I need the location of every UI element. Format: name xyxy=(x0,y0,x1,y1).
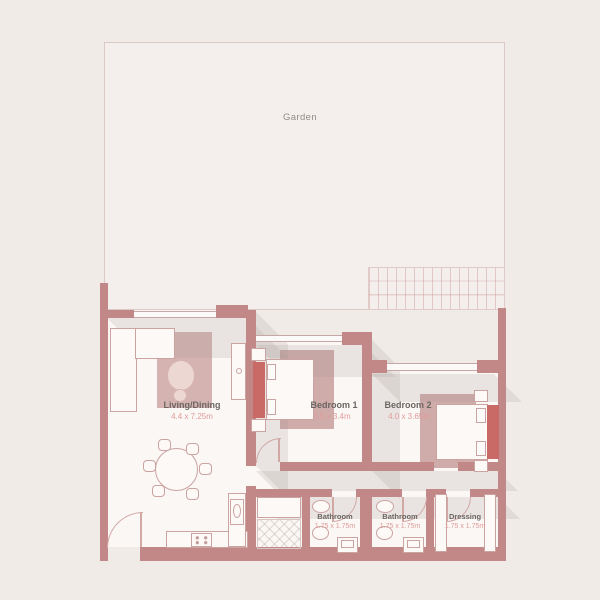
armchair xyxy=(167,360,195,391)
wall-right xyxy=(498,308,506,561)
dining-chair xyxy=(186,443,199,455)
wall-bedroom2-pillar-left xyxy=(371,360,387,373)
stove xyxy=(191,533,212,547)
wall-bathroom1-bathroom2 xyxy=(360,489,372,547)
bedroom2-window xyxy=(386,363,478,371)
dressing-closet-right xyxy=(484,494,496,552)
bedroom1-nightstand xyxy=(251,419,266,432)
bedroom2-pillow xyxy=(476,408,486,423)
wall-bedroom2-bottom-a xyxy=(372,462,434,471)
utility-hatched-area xyxy=(257,519,301,549)
bedroom1-door-leaf xyxy=(278,438,280,462)
dining-chair xyxy=(186,488,199,500)
kitchen-sink-basin xyxy=(233,504,241,518)
wall-bathroom1-left xyxy=(302,489,310,547)
wall-bedroom1-bedroom2 xyxy=(362,339,372,471)
dining-chair xyxy=(143,460,156,472)
bedroom2-headboard xyxy=(487,405,499,459)
dining-chair xyxy=(158,439,171,451)
pergola-trellis xyxy=(368,267,505,310)
bedroom1-window xyxy=(254,335,343,342)
tv-unit-decor xyxy=(236,368,242,374)
bathroom2-dims: 1.75 x 1.75m xyxy=(380,522,420,531)
bedroom1-headboard xyxy=(253,362,265,418)
wall-living-top xyxy=(216,305,248,318)
garden-label: Garden xyxy=(283,112,317,123)
bathroom2-label: Bathroom xyxy=(382,512,417,522)
dressing-dims: 1.75 x 1.75m xyxy=(445,522,485,531)
living-label: Living/Dining xyxy=(164,400,221,410)
bathroom1-dims: 1.75 x 1.75m xyxy=(315,522,355,531)
wall-bottom xyxy=(140,547,506,561)
bedroom2-label: Bedroom 2 xyxy=(384,400,431,410)
wall-bedroom1-bottom xyxy=(280,462,372,471)
sofa-vertical xyxy=(110,328,137,412)
living-dims: 4.4 x 7.25m xyxy=(171,412,213,421)
entrance-door-leaf xyxy=(140,512,142,547)
dressing-label: Dressing xyxy=(449,512,481,522)
sofa-horizontal xyxy=(135,328,175,359)
dining-chair xyxy=(199,463,212,475)
bedroom1-nightstand xyxy=(251,348,266,361)
floor-plan: Garden xyxy=(0,0,600,600)
wall-top-left-stub xyxy=(100,310,134,318)
bathroom2-shower-tray xyxy=(407,540,420,548)
bedroom1-pillow xyxy=(267,399,276,415)
dining-chair xyxy=(152,485,165,497)
bedroom2-pillow xyxy=(476,441,486,456)
bathroom1-label: Bathroom xyxy=(317,512,352,522)
living-window xyxy=(133,311,217,318)
bedroom2-nightstand xyxy=(474,390,488,402)
bedroom1-dims: 3.5 x 3.4m xyxy=(313,412,350,421)
wall-bathroom2-dressing xyxy=(426,489,434,547)
utility-appliance xyxy=(257,497,301,518)
wall-bath-top-a xyxy=(256,489,332,497)
bedroom1-label: Bedroom 1 xyxy=(310,400,357,410)
bedroom1-pillow xyxy=(267,364,276,380)
bedroom2-dims: 4.0 x 3.65m xyxy=(388,412,430,421)
bedroom2-nightstand xyxy=(474,460,488,472)
shadow xyxy=(256,471,518,491)
wall-left xyxy=(100,283,108,561)
bathroom1-shower-tray xyxy=(341,540,354,548)
